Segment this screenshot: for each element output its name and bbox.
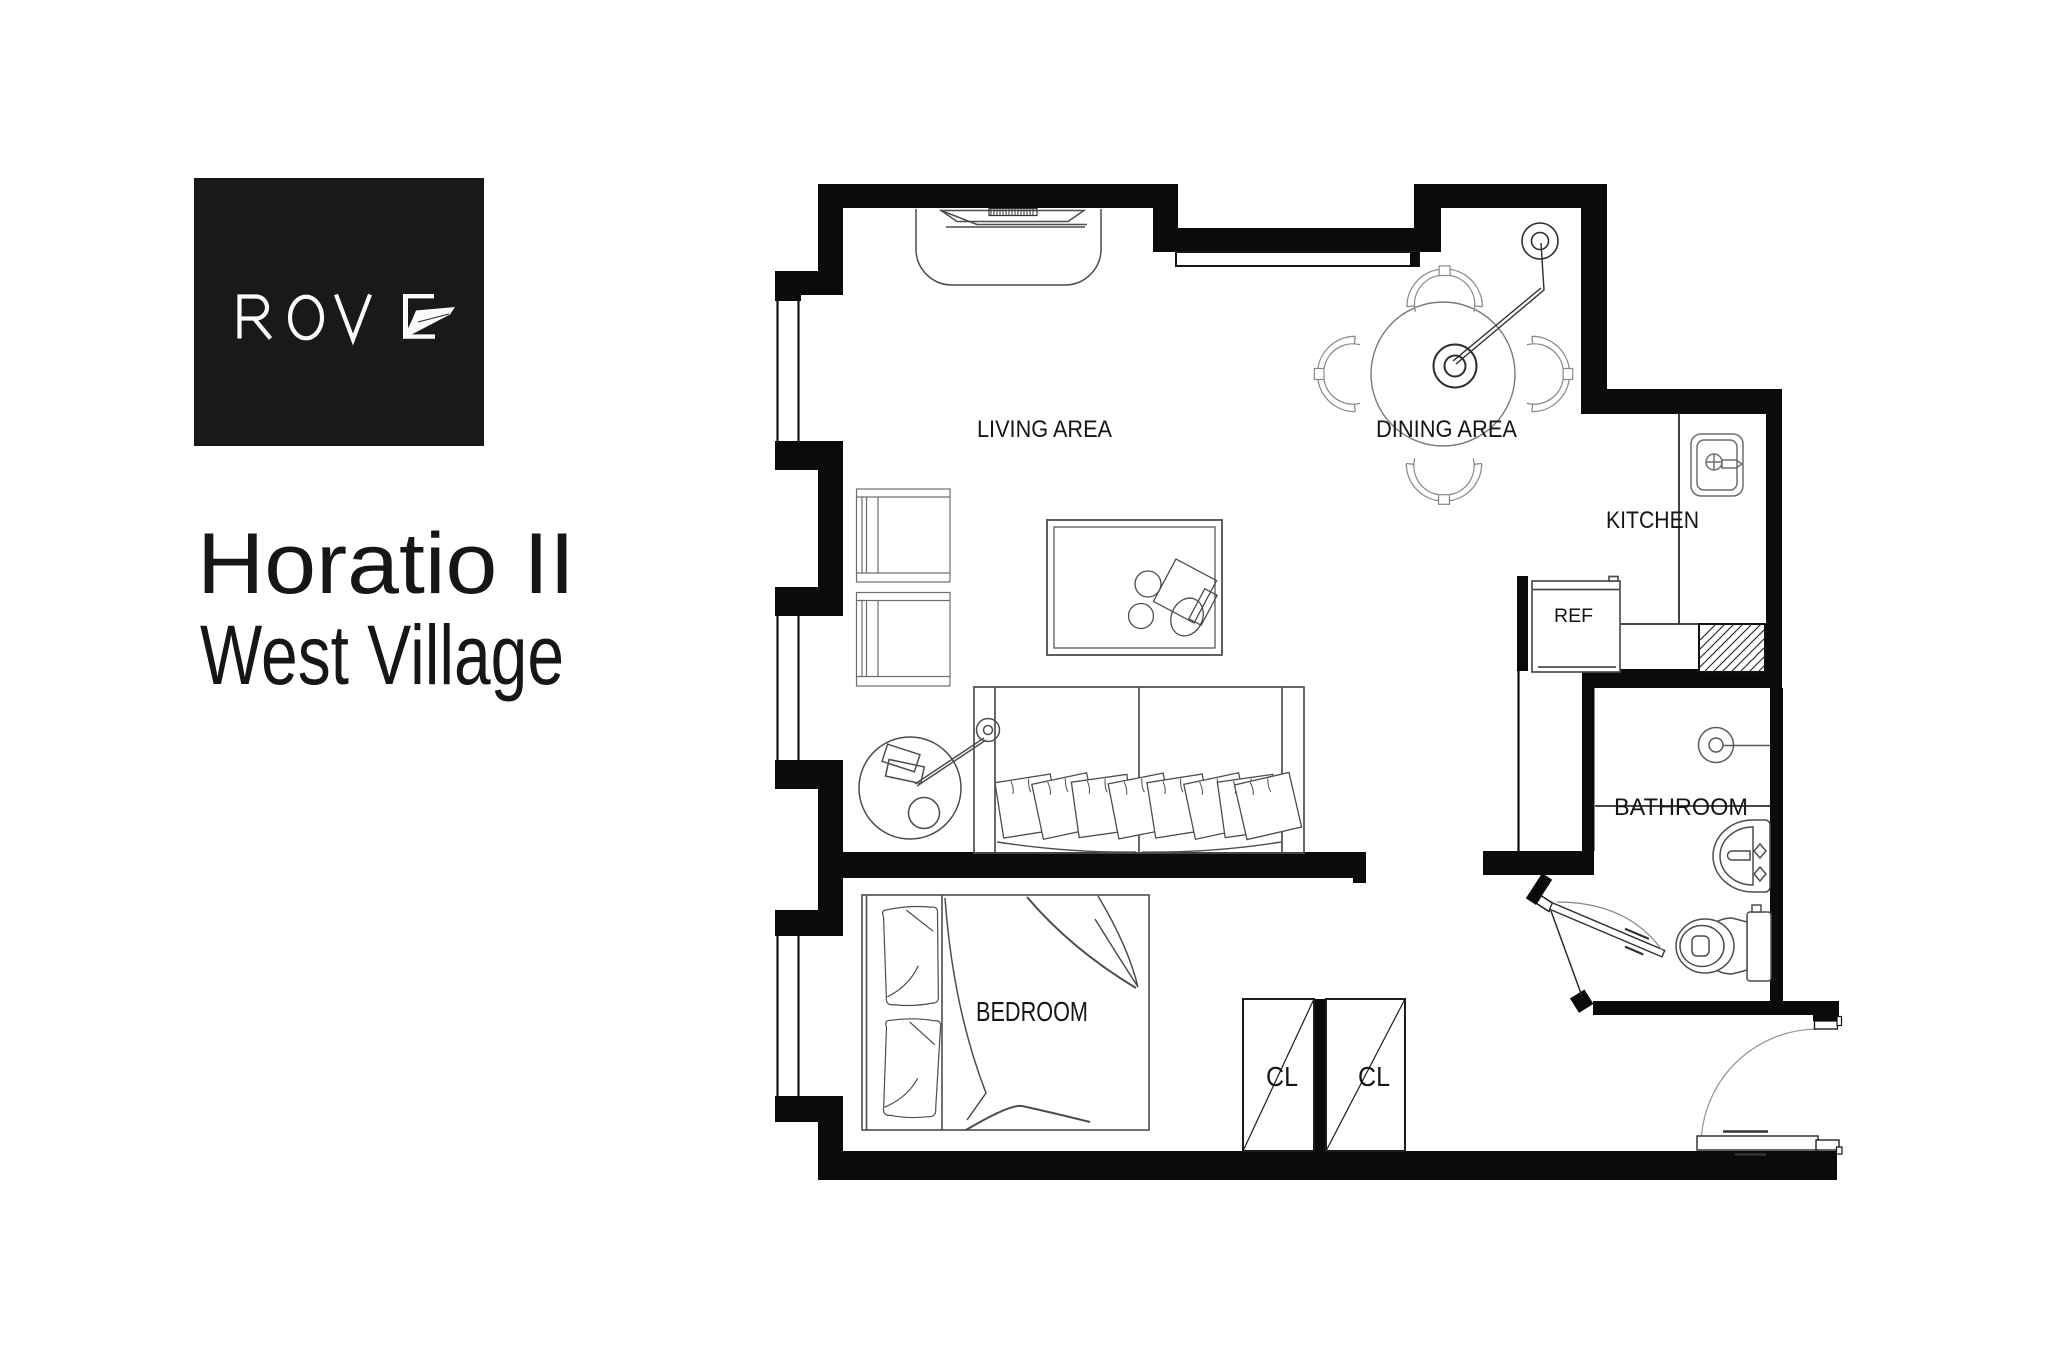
svg-text:KITCHEN: KITCHEN bbox=[1606, 507, 1699, 534]
svg-text:DINING AREA: DINING AREA bbox=[1376, 416, 1517, 443]
svg-text:Horatio II: Horatio II bbox=[197, 516, 575, 612]
svg-text:West Village: West Village bbox=[200, 608, 564, 702]
svg-text:CL: CL bbox=[1266, 1061, 1298, 1092]
svg-text:REF: REF bbox=[1554, 606, 1593, 627]
svg-text:CL: CL bbox=[1358, 1061, 1390, 1092]
svg-text:BATHROOM: BATHROOM bbox=[1614, 794, 1748, 821]
svg-text:BEDROOM: BEDROOM bbox=[976, 996, 1088, 1027]
svg-text:LIVING AREA: LIVING AREA bbox=[977, 416, 1112, 443]
